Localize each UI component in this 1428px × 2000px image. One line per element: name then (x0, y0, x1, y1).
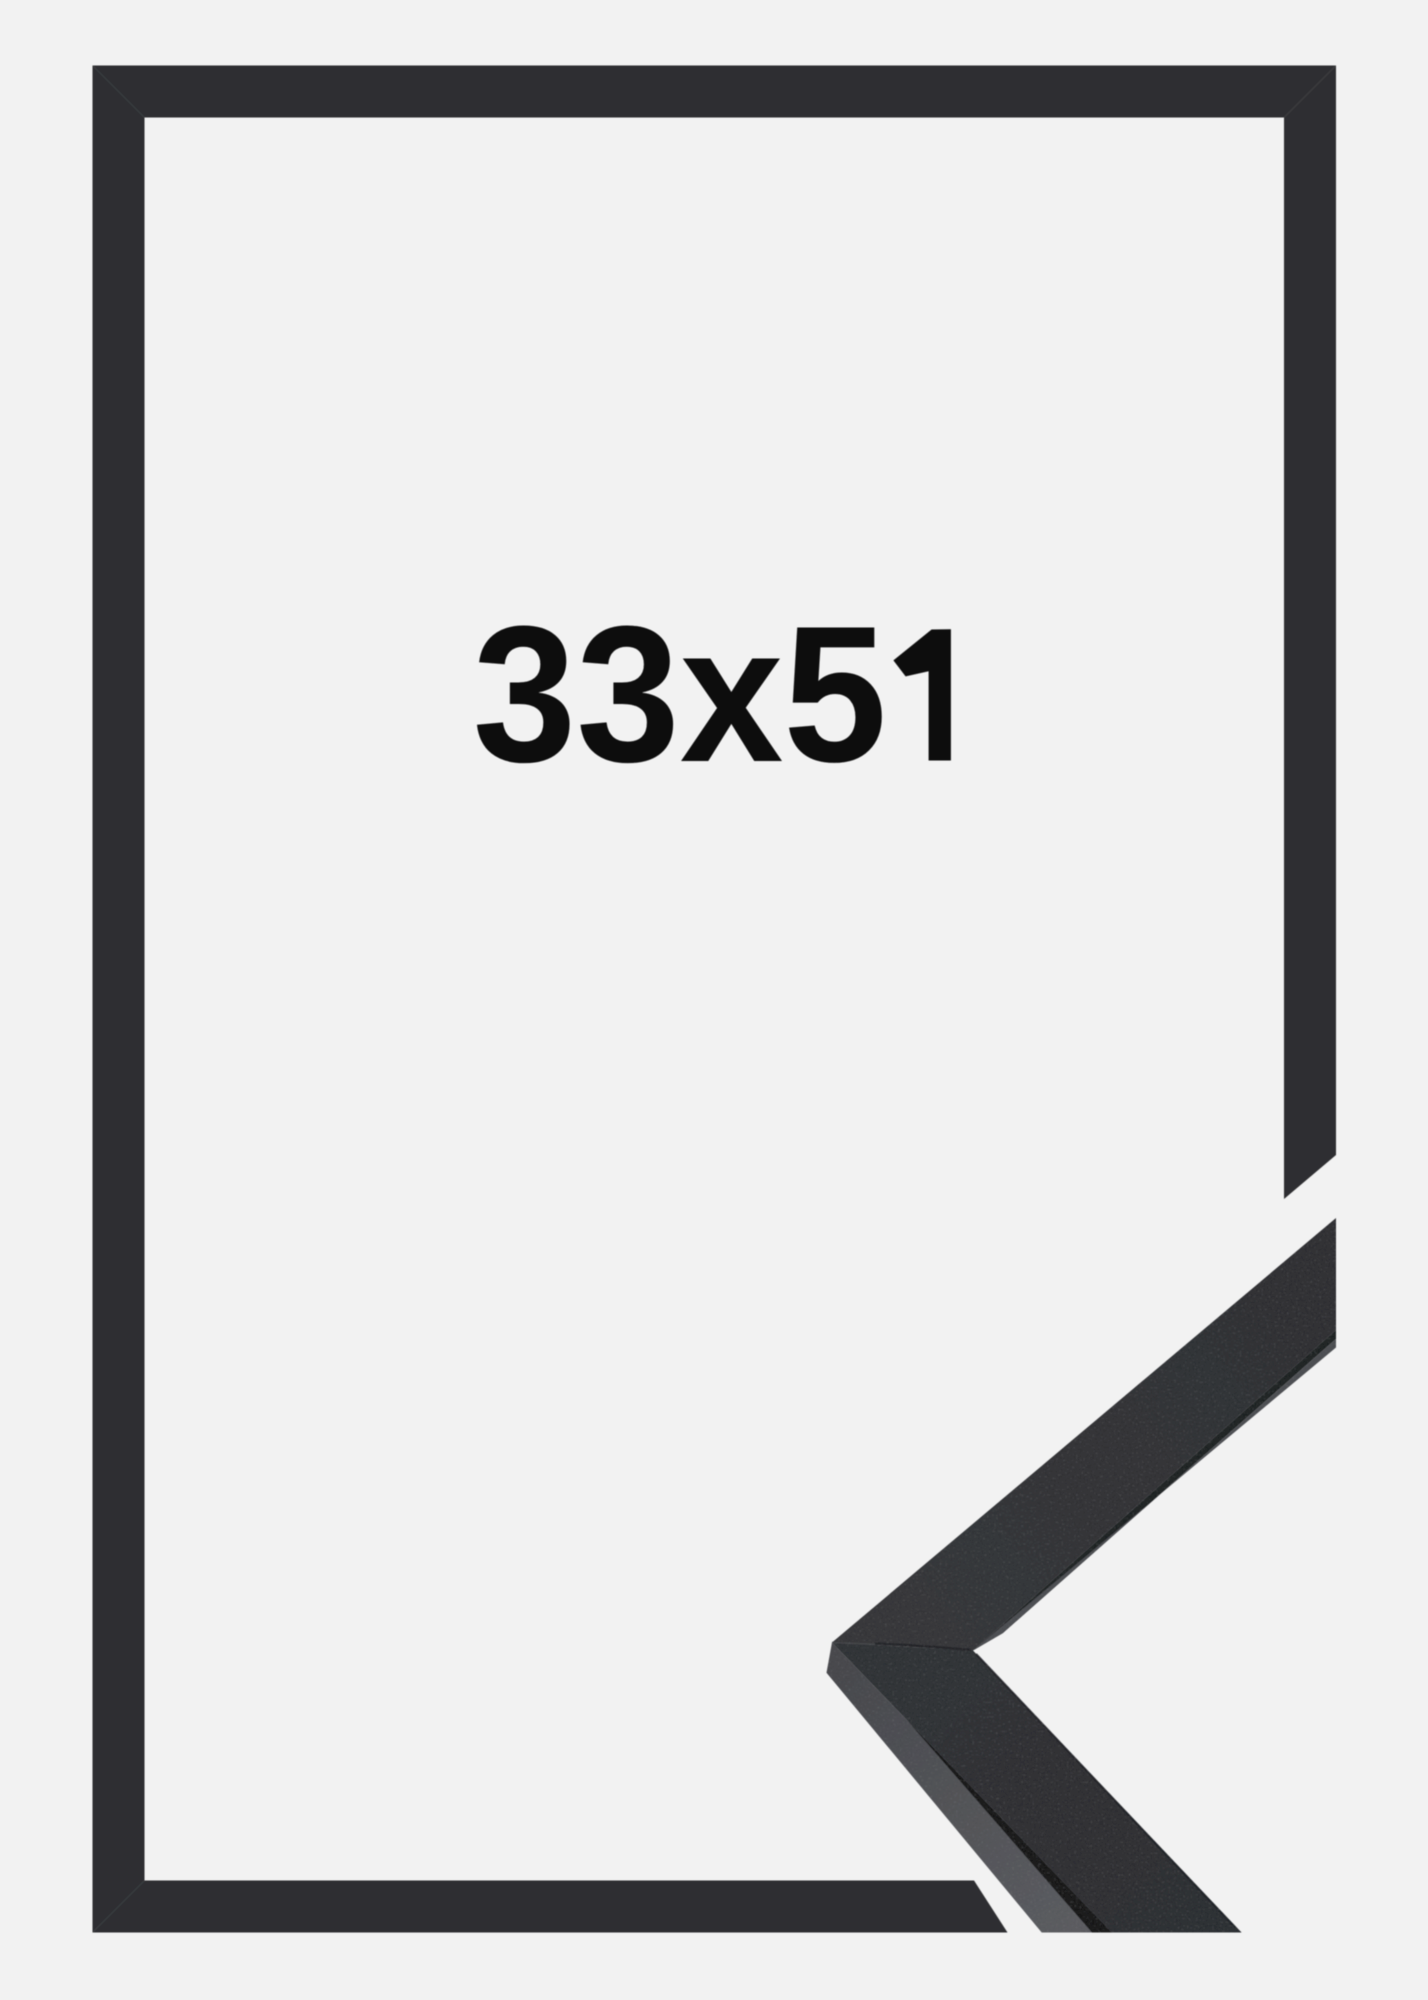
svg-text:33x5: 33x5 (473, 587, 887, 803)
